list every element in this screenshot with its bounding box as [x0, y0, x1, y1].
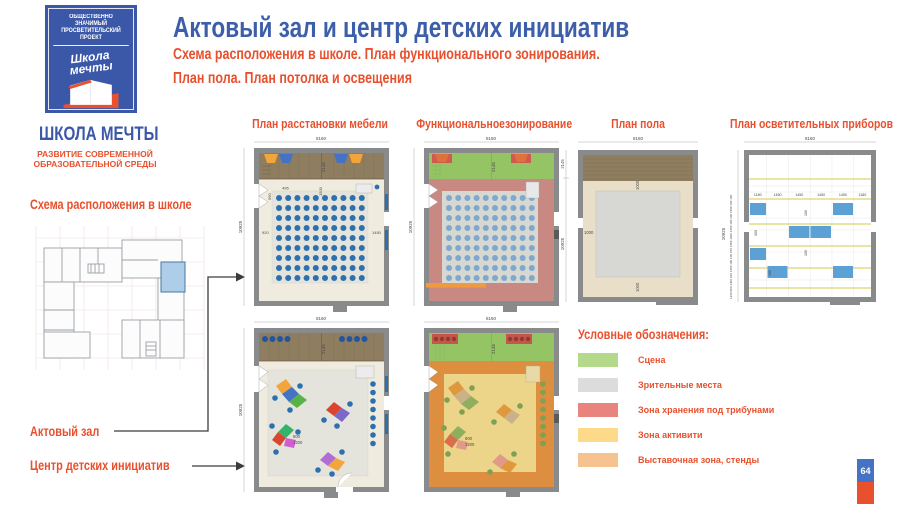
svg-text:1450: 1450 — [817, 193, 825, 197]
plan-zoning-hall: 8160 10925 2145 — [408, 134, 574, 314]
wall-notch-left — [744, 222, 749, 232]
svg-text:1200: 1200 — [293, 440, 303, 445]
svg-text:2145: 2145 — [491, 162, 496, 172]
brand-tagline: РАЗВИТИЕ СОВРЕМЕННОЙ ОБРАЗОВАТЕЛЬНОЙ СРЕ… — [25, 149, 165, 169]
logo-frame: ОБЩЕСТВЕННО ЗНАЧИМЫЙ ПРОСВЕТИТЕЛЬСКИЙ ПР… — [48, 8, 134, 110]
svg-text:1500: 1500 — [318, 186, 323, 196]
page-subtitle-line2: План пола. План потолка и освещения — [173, 70, 479, 88]
page-number-badge: 64 — [857, 459, 874, 504]
legend-item-activity: Зона активити — [578, 428, 828, 442]
plan-furniture-children-center: 8160 10925 2145 — [238, 314, 404, 500]
stage-zone: 2145 — [259, 153, 384, 179]
scheme-location-label: Схема расположения в школе — [30, 196, 237, 212]
logo-script-text: Школа мечты — [68, 49, 114, 76]
chair-dot — [375, 185, 380, 190]
svg-text:600: 600 — [293, 434, 301, 439]
legend: Условные обозначения: Сцена Зрительные м… — [578, 326, 828, 467]
table — [526, 366, 540, 382]
svg-text:560: 560 — [267, 193, 272, 200]
exhibition-strip — [426, 283, 486, 288]
svg-text:2145: 2145 — [491, 344, 496, 354]
svg-text:1180: 1180 — [754, 193, 762, 197]
page-title: Актовый зал и центр детских инициатив — [173, 12, 758, 45]
sketch-building — [44, 240, 184, 358]
table — [526, 182, 539, 198]
legend-item-audience: Зрительные места — [578, 378, 828, 392]
exhibition-swatch — [578, 453, 618, 467]
stage-wood-floor — [583, 155, 693, 181]
window-opening — [384, 212, 389, 226]
svg-text:10925: 10925 — [560, 237, 565, 250]
highlighted-hall-room — [161, 262, 185, 292]
svg-text:8160: 8160 — [486, 316, 497, 321]
svg-text:100: 100 — [804, 250, 808, 256]
svg-text:8160: 8160 — [316, 136, 327, 141]
svg-text:2145: 2145 — [321, 162, 326, 172]
svg-text:8160: 8160 — [316, 316, 327, 321]
page-number: 64 — [857, 459, 874, 482]
school-of-dreams-logo: ОБЩЕСТВЕННО ЗНАЧИМЫЙ ПРОСВЕТИТЕЛЬСКИЙ ПР… — [45, 5, 137, 113]
svg-text:8160: 8160 — [805, 136, 816, 141]
plan-zoning-children-center: 8160 2145 — [408, 314, 574, 500]
storage-swatch — [578, 403, 618, 417]
legend-title: Условные обозначения: — [578, 326, 828, 342]
wall-step — [333, 306, 347, 312]
wall-step — [506, 487, 520, 497]
wall-step — [830, 297, 860, 305]
svg-text:10925: 10925 — [721, 227, 726, 240]
stage-zone-green: 2145 — [429, 153, 554, 179]
logo-project-line1: ОБЩЕСТВЕННО ЗНАЧИМЫЙ — [69, 14, 113, 27]
svg-text:10925: 10925 — [238, 403, 243, 416]
table — [356, 184, 372, 193]
wall-step — [503, 306, 517, 312]
audience-swatch — [578, 378, 618, 392]
svg-text:1000: 1000 — [635, 180, 640, 190]
brand-name: ШКОЛА МЕЧТЫ — [25, 124, 165, 146]
header-zoning-plan: Функциональноезонирование — [398, 116, 580, 131]
plan-lighting: 8160 1260 900 1400 100 1450 100 100 970 … — [720, 134, 890, 314]
svg-text:1000: 1000 — [584, 230, 594, 235]
wall-step — [656, 297, 698, 305]
wall-notch-left — [578, 218, 583, 228]
window-opening — [554, 396, 559, 410]
svg-text:1000: 1000 — [635, 282, 640, 292]
children-center-label: Центр детских инициатив — [30, 457, 209, 473]
svg-text:100: 100 — [768, 270, 772, 276]
school-floorplan-sketch — [28, 220, 212, 374]
central-floor-area — [596, 191, 680, 277]
wall-notch-right — [871, 222, 876, 232]
wall-step — [324, 492, 338, 498]
svg-text:1450: 1450 — [839, 193, 847, 197]
logo-project-text: ОБЩЕСТВЕННО ЗНАЧИМЫЙ ПРОСВЕТИТЕЛЬСКИЙ ПР… — [53, 14, 129, 46]
logo-building-icon — [54, 74, 128, 109]
svg-text:100: 100 — [804, 210, 808, 216]
svg-text:10925: 10925 — [238, 220, 243, 233]
header-lighting-plan: План осветительных приборов — [710, 116, 900, 131]
svg-text:300: 300 — [754, 230, 758, 236]
legend-item-exhibition: Выставочная зона, стенды — [578, 453, 828, 467]
window-opening — [384, 396, 389, 410]
svg-text:495: 495 — [282, 186, 289, 191]
badge-accent — [857, 482, 874, 504]
svg-text:2145: 2145 — [321, 344, 326, 354]
svg-text:8160: 8160 — [633, 136, 644, 141]
svg-text:10925: 10925 — [408, 220, 413, 233]
legend-item-stage: Сцена — [578, 353, 828, 367]
activity-swatch — [578, 428, 618, 442]
stage-zone: 2145 — [259, 333, 384, 361]
page-subtitle-line1: Схема расположения в школе. План функцио… — [173, 46, 720, 64]
svg-text:920: 920 — [262, 230, 269, 235]
svg-text:1450: 1450 — [795, 193, 803, 197]
table — [356, 366, 374, 378]
svg-text:1260 900 1400 100 1450 100: 1260 900 1400 100 1450 100 100 970 1450 … — [729, 194, 733, 299]
stage-swatch — [578, 353, 618, 367]
header-floor-plan: План пола — [577, 116, 699, 131]
hall-label: Актовый зал — [30, 423, 119, 439]
svg-text:8160: 8160 — [486, 136, 497, 141]
wall-notch-right — [693, 218, 698, 228]
svg-text:600: 600 — [465, 436, 473, 441]
header-furniture-plan: План расстановки мебели — [235, 116, 405, 131]
plan-furniture-hall: 8160 10925 2145 — [238, 134, 404, 314]
svg-text:1450: 1450 — [372, 230, 382, 235]
plan-floor: 8160 2145 10925 1000 1000 1000 — [556, 134, 706, 314]
svg-text:1450: 1450 — [774, 193, 782, 197]
logo-project-line2: ПРОСВЕТИТЕЛЬСКИЙ ПРОЕКТ — [61, 28, 121, 41]
svg-text:2145: 2145 — [560, 159, 565, 169]
legend-item-storage: Зона хранения под трибунами — [578, 403, 828, 417]
stage-zone-green: 2145 — [429, 333, 554, 361]
slide: ОБЩЕСТВЕННО ЗНАЧИМЫЙ ПРОСВЕТИТЕЛЬСКИЙ ПР… — [0, 0, 900, 506]
svg-text:1200: 1200 — [465, 442, 475, 447]
svg-text:1180: 1180 — [859, 193, 867, 197]
